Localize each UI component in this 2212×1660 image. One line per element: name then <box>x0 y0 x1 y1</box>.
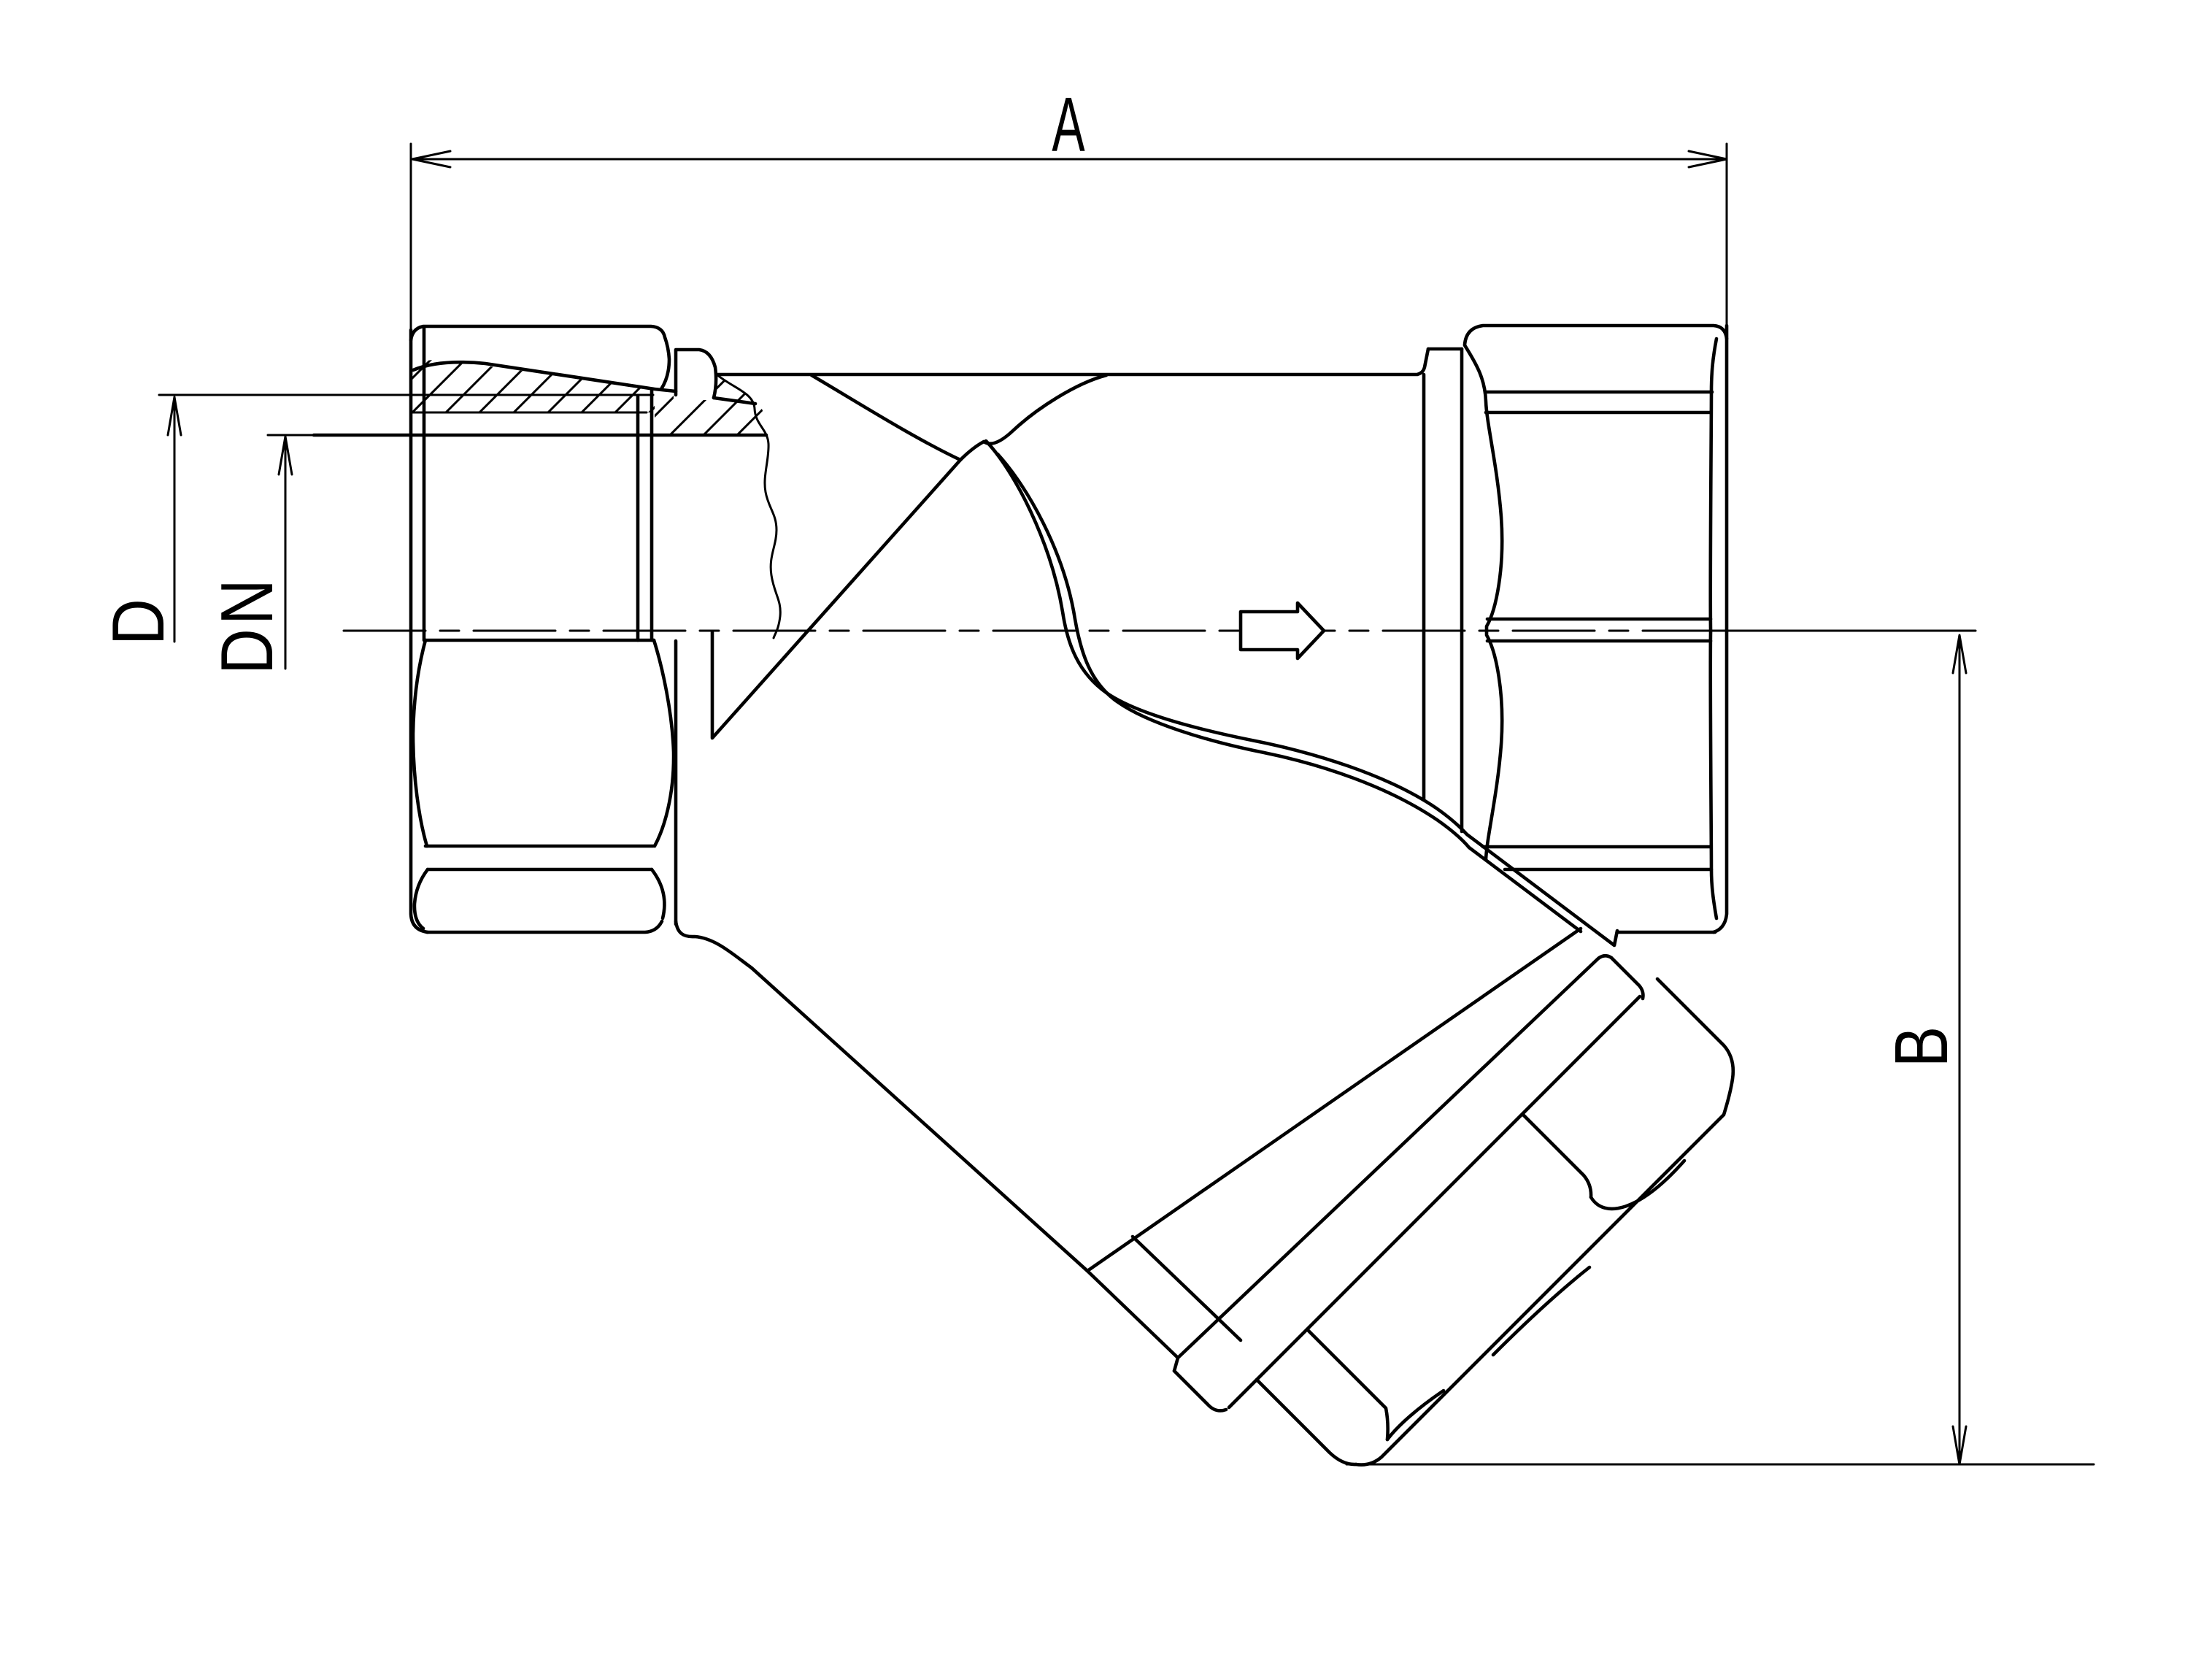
svg-text:A: A <box>1052 81 1085 168</box>
svg-text:DN: DN <box>206 575 288 675</box>
svg-text:D: D <box>98 599 180 645</box>
svg-text:B: B <box>1879 1026 1963 1067</box>
